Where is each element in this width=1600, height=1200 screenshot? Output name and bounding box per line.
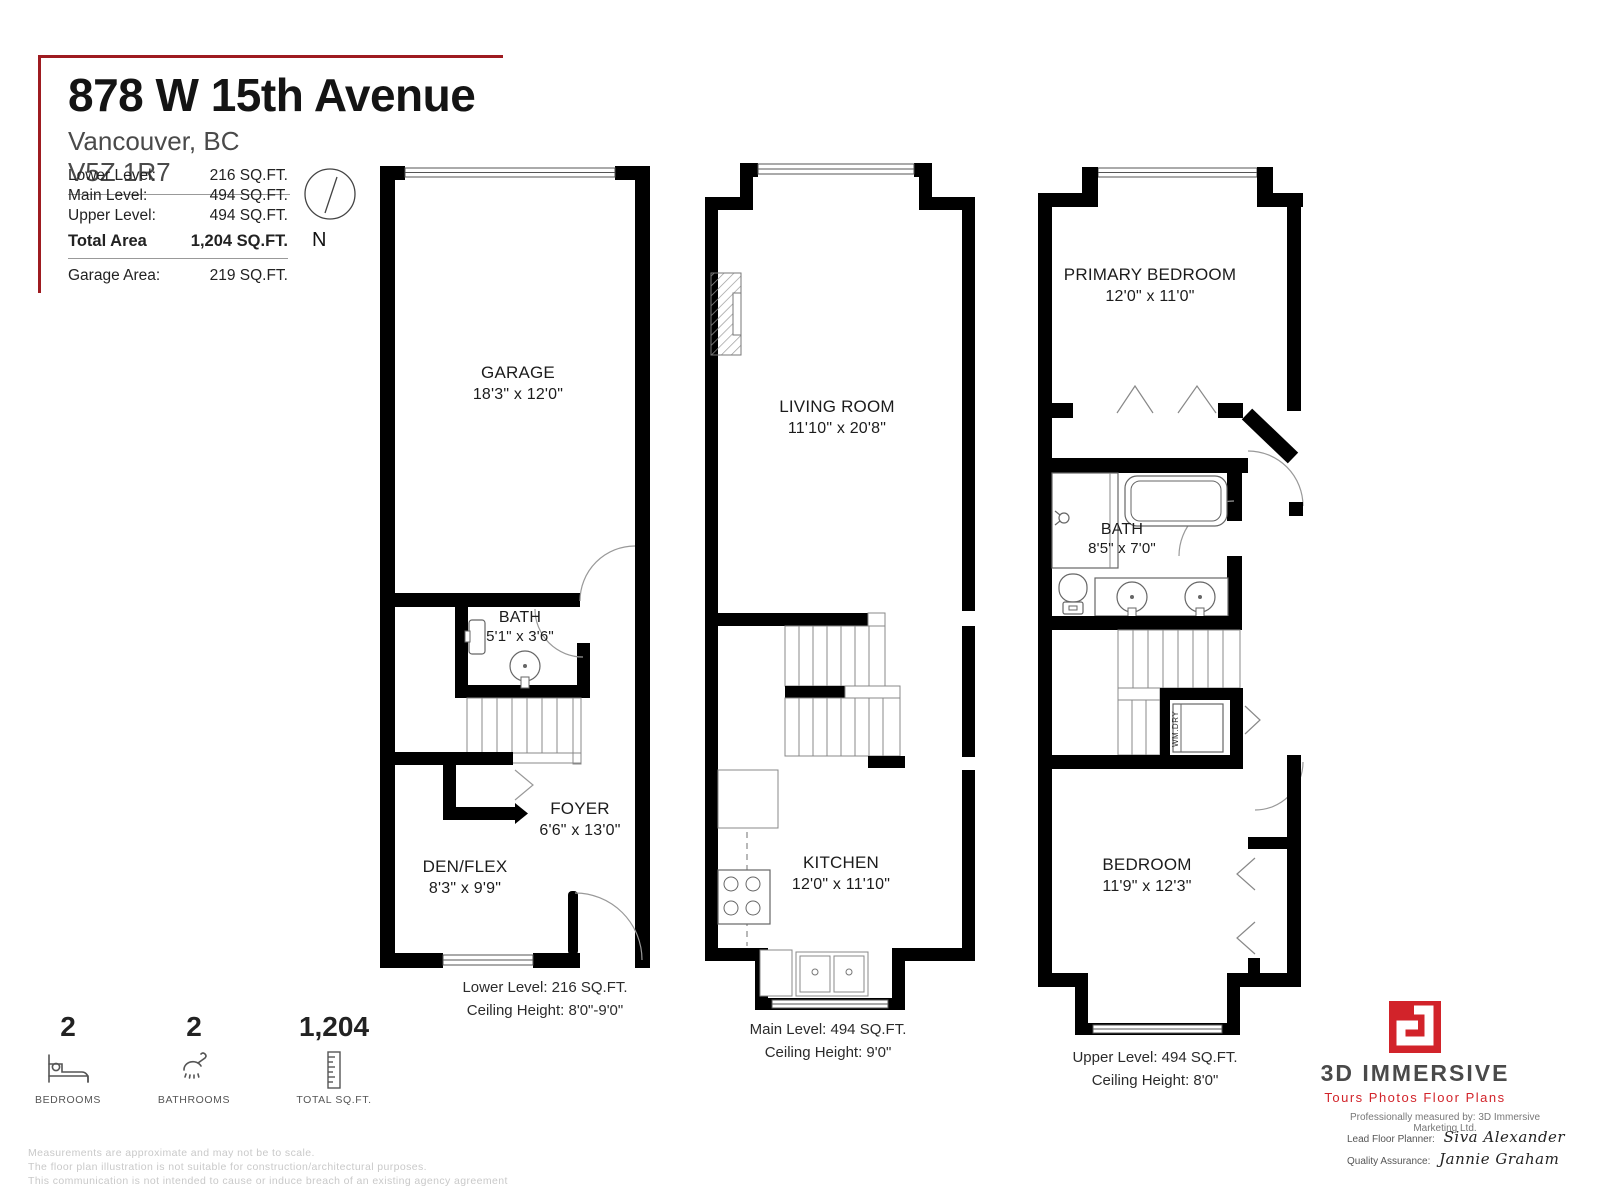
area-label: Garage Area: — [68, 266, 160, 286]
window — [758, 164, 914, 174]
wall — [380, 166, 395, 968]
toilet — [1059, 574, 1087, 614]
page-title: 878 W 15th Avenue — [68, 68, 475, 122]
window — [1098, 168, 1257, 177]
main-level-caption: Main Level: 494 SQ.FT. Ceiling Height: 9… — [708, 1018, 948, 1064]
upper-entry-door — [1248, 451, 1303, 506]
stat-total-sqft: 1,204 TOTAL SQ.FT. — [279, 1012, 389, 1106]
stairs — [718, 613, 905, 768]
area-row-main: Main Level: 494 SQ.FT. — [68, 186, 288, 206]
window — [443, 955, 533, 965]
planner-signature-row: Lead Floor Planner: Siva Alexander — [1347, 1128, 1565, 1146]
area-label: Total Area — [68, 229, 147, 253]
room-label-upper-bath: BATH 8'5" x 7'0" — [1052, 520, 1192, 558]
disclaimer-text: Measurements are approximate and may not… — [28, 1146, 508, 1188]
room-label-kitchen: KITCHEN 12'0" x 11'10" — [741, 852, 941, 896]
closet-bifold — [1117, 386, 1153, 413]
compass-north-label: N — [298, 229, 368, 252]
ruler-icon — [279, 1050, 389, 1090]
brand-name: 3D IMMERSIVE — [1320, 1060, 1510, 1087]
laundry-closet: WM.DRY — [1160, 700, 1260, 755]
qa-signature: Jannie Graham — [1439, 1150, 1559, 1168]
area-value: 1,204 SQ.FT. — [191, 229, 288, 253]
closet-door-leaf — [1245, 706, 1260, 734]
area-value: 219 SQ.FT. — [210, 266, 288, 286]
room-label-foyer: FOYER 6'6" x 13'0" — [500, 798, 660, 842]
area-row-upper: Upper Level: 494 SQ.FT. — [68, 206, 288, 226]
lower-level-plan: GARAGE 18'3" x 12'0" BATH 5'1" x 3'6" FO… — [375, 158, 655, 1028]
window — [1093, 1025, 1222, 1033]
counter — [718, 770, 778, 828]
qa-label: Quality Assurance: — [1347, 1156, 1430, 1167]
shower-icon — [139, 1050, 249, 1090]
open-door-leaf — [515, 770, 533, 800]
area-value: 494 SQ.FT. — [210, 206, 288, 226]
room-label-primary-bedroom: PRIMARY BEDROOM 12'0" x 11'0" — [1030, 264, 1270, 308]
planner-signature: Siva Alexander — [1444, 1128, 1565, 1146]
room-label-garage: GARAGE 18'3" x 12'0" — [418, 362, 618, 406]
stat-bedrooms: 2 BEDROOMS — [13, 1012, 123, 1106]
compass-icon: N — [298, 164, 368, 256]
area-row-garage: Garage Area: 219 SQ.FT. — [68, 258, 288, 286]
room-label-bath: BATH 5'1" x 3'6" — [440, 608, 600, 646]
garage-door — [405, 168, 615, 177]
washer-dryer-label: WM.DRY — [1171, 711, 1180, 747]
entry-door — [568, 891, 642, 960]
compass-circle — [298, 164, 368, 230]
window — [772, 1000, 888, 1008]
qa-signature-row: Quality Assurance: Jannie Graham — [1347, 1150, 1559, 1168]
brand-tagline: Tours Photos Floor Plans — [1320, 1090, 1510, 1105]
room-label-living-room: LIVING ROOM 11'10" x 20'8" — [737, 396, 937, 440]
area-row-lower: Lower Level: 216 SQ.FT. — [68, 166, 288, 186]
upper-level-plan: WM.DRY PRIMARY BEDROOM 12 — [1015, 158, 1315, 1088]
stat-bathrooms: 2 BATHROOMS — [139, 1012, 249, 1106]
wall — [380, 593, 580, 607]
area-value: 216 SQ.FT. — [210, 166, 288, 186]
wall — [635, 166, 650, 968]
area-label: Lower Level: — [68, 166, 156, 186]
upper-level-caption: Upper Level: 494 SQ.FT. Ceiling Height: … — [1035, 1046, 1275, 1092]
closet-bifold — [1237, 922, 1255, 954]
lower-level-caption: Lower Level: 216 SQ.FT. Ceiling Height: … — [435, 976, 655, 1022]
main-level-drawing — [700, 158, 980, 1068]
area-label: Main Level: — [68, 186, 147, 206]
planner-label: Lead Floor Planner: — [1347, 1134, 1435, 1145]
area-row-total: Total Area 1,204 SQ.FT. — [68, 229, 288, 253]
logo-mark — [1389, 1001, 1441, 1058]
garage-interior-door — [580, 546, 635, 601]
closet-bifold — [1178, 386, 1216, 413]
area-summary-table: Lower Level: 216 SQ.FT. Main Level: 494 … — [68, 166, 288, 286]
room-label-bedroom: BEDROOM 11'9" x 12'3" — [1047, 854, 1247, 898]
area-value: 494 SQ.FT. — [210, 186, 288, 206]
bed-icon — [13, 1050, 123, 1090]
fireplace — [711, 273, 741, 355]
double-vanity — [1095, 578, 1228, 618]
room-label-den-flex: DEN/FLEX 8'3" x 9'9" — [385, 856, 545, 900]
bathtub — [1125, 476, 1227, 526]
kitchen-sink — [796, 952, 868, 996]
cabinet — [760, 950, 792, 996]
area-label: Upper Level: — [68, 206, 156, 226]
floorplan-page: 878 W 15th Avenue Vancouver, BC V5Z 1R7 … — [0, 0, 1600, 1200]
main-level-plan: LIVING ROOM 11'10" x 20'8" KITCHEN 12'0"… — [700, 158, 980, 1068]
